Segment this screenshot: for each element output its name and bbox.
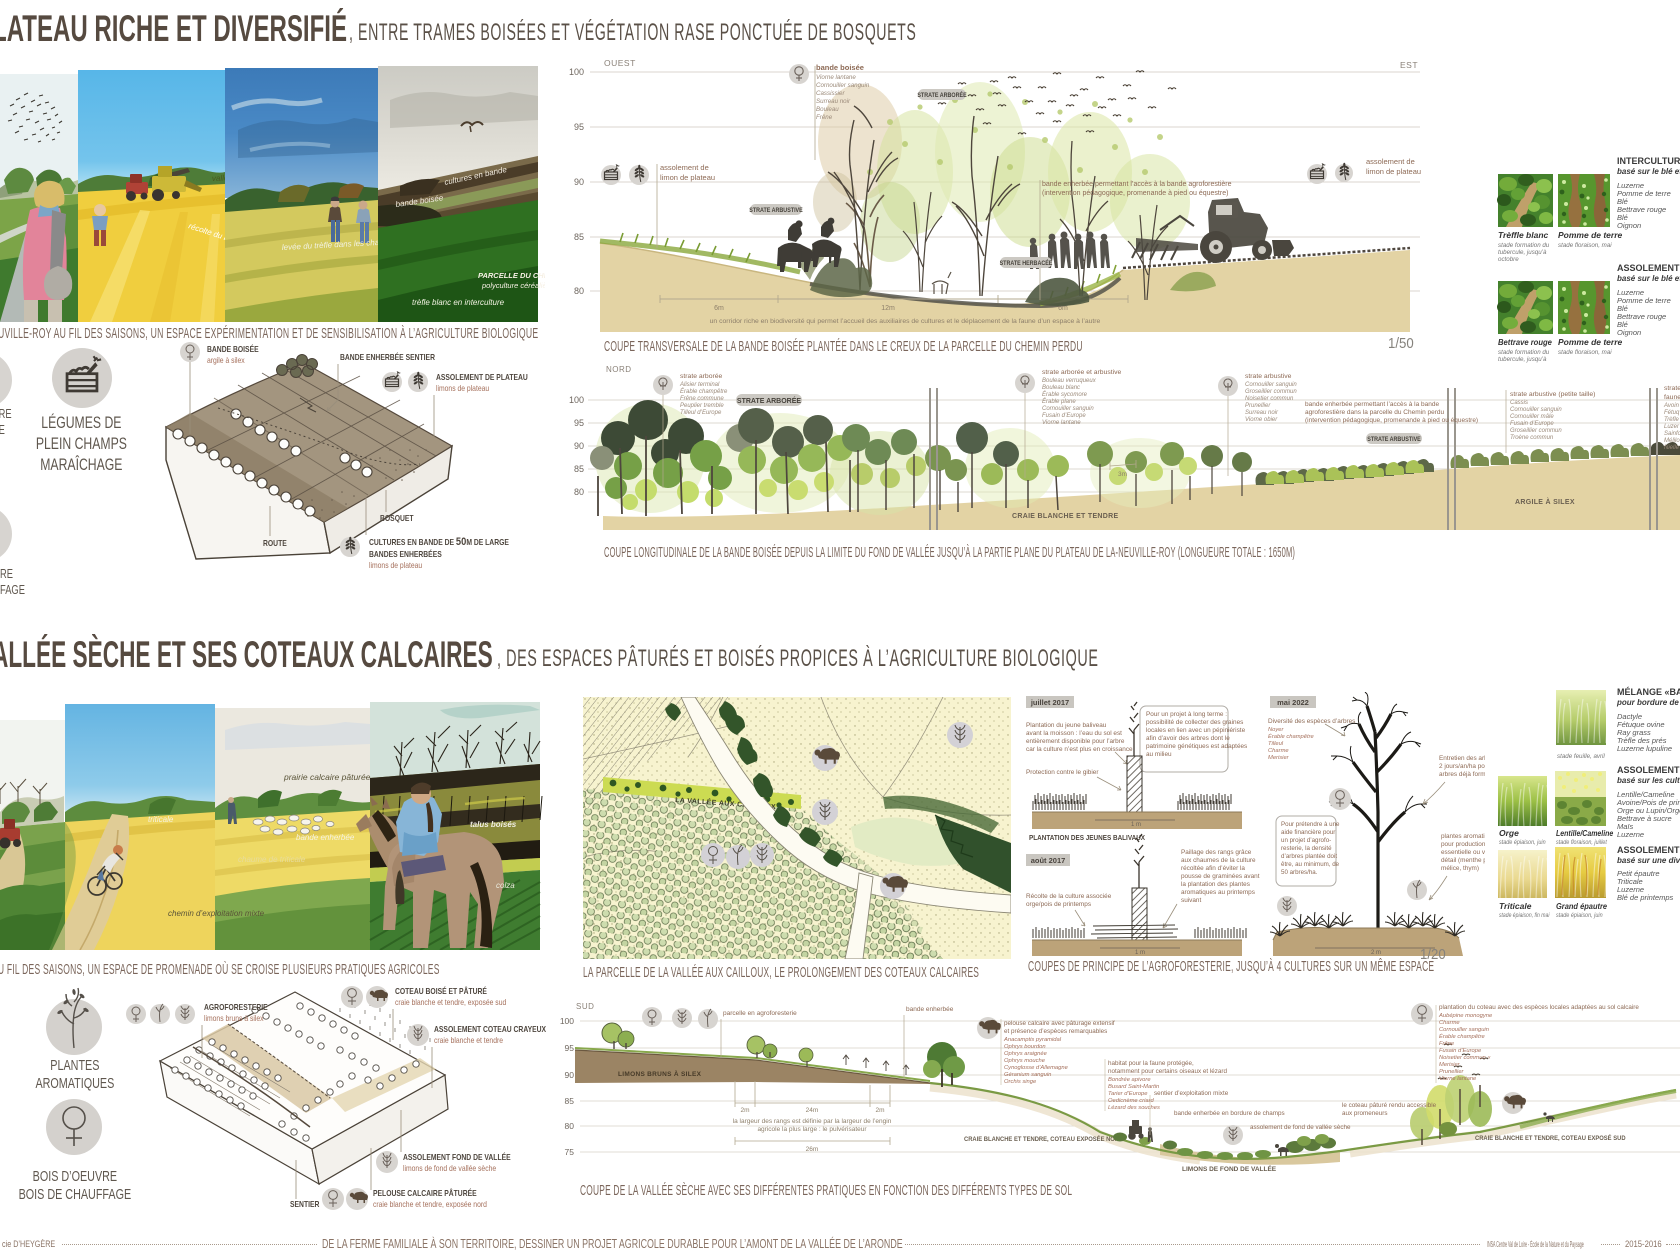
svg-text:Charme: Charme: [1439, 1020, 1460, 1026]
svg-text:FAGE: FAGE: [0, 584, 25, 598]
svg-text:Merisier: Merisier: [1439, 1062, 1461, 1068]
svg-text:Plantation du jeune baliveau: Plantation du jeune baliveau: [1026, 722, 1107, 729]
svg-text:CULTURES EN BANDE DE 50M DE LA: CULTURES EN BANDE DE 50M DE LARGE: [369, 536, 509, 548]
svg-text:tubercule, jusqu’à: tubercule, jusqu’à: [1498, 249, 1547, 256]
svg-text:PLANTES: PLANTES: [50, 1056, 99, 1073]
svg-text:95: 95: [565, 1043, 575, 1053]
svg-text:resterie, la densité: resterie, la densité: [1281, 845, 1332, 852]
svg-text:Groseillier commun: Groseillier commun: [1510, 428, 1562, 434]
svg-text:Prunellier: Prunellier: [1245, 403, 1271, 409]
svg-text:et présence d’espèces remarqua: et présence d’espèces remarquables: [1004, 1028, 1107, 1035]
svg-text:Oignon: Oignon: [1617, 328, 1641, 337]
svg-text:mélice, thym): mélice, thym): [1441, 865, 1479, 872]
svg-text:LÉGUMES DE: LÉGUMES DE: [41, 413, 121, 433]
svg-text:Pour un projet à long terme :: Pour un projet à long terme :: [1146, 711, 1227, 718]
svg-text:pour production d’huile: pour production d’huile: [1441, 841, 1485, 848]
svg-text:Charme: Charme: [1268, 748, 1289, 754]
svg-text:octobre: octobre: [1498, 256, 1519, 263]
svg-text:BANDE ENHERBÉE SENTIER: BANDE ENHERBÉE SENTIER: [340, 352, 436, 362]
svg-text:limons bruns à silex: limons bruns à silex: [204, 1013, 264, 1023]
svg-text:Anacamptis pyramidal: Anacamptis pyramidal: [1003, 1037, 1062, 1043]
svg-text:Prunellier: Prunellier: [1439, 1069, 1465, 1075]
svg-text:90: 90: [565, 1070, 575, 1080]
svg-text:limon de plateau: limon de plateau: [1366, 167, 1421, 176]
svg-text:EST: EST: [1400, 60, 1418, 70]
svg-text:faune: faune: [1664, 394, 1680, 401]
svg-text:RE: RE: [0, 568, 13, 582]
svg-text:PELOUSE CALCAIRE PÂTURÉE: PELOUSE CALCAIRE PÂTURÉE: [373, 1188, 477, 1198]
svg-text:Ophrys bourdon: Ophrys bourdon: [1004, 1044, 1046, 1050]
svg-text:85: 85: [574, 464, 584, 474]
svg-text:OUEST: OUEST: [604, 58, 636, 68]
svg-text:Grand épautre: Grand épautre: [1556, 902, 1608, 912]
svg-text:récoltée afin d’éviter la: récoltée afin d’éviter la: [1181, 865, 1245, 872]
svg-text:la largeur des rangs est défin: la largeur des rangs est définie par la …: [733, 1118, 892, 1125]
svg-text:1 m: 1 m: [1131, 822, 1141, 828]
svg-text:Récolte de la culture associée: Récolte de la culture associée: [1026, 893, 1112, 900]
svg-text:24m: 24m: [806, 1107, 819, 1114]
svg-text:Frêne: Frêne: [1439, 1041, 1455, 1047]
svg-text:basé sur les cultures: basé sur les cultures: [1617, 776, 1680, 785]
svg-text:Bouleau verruqueux: Bouleau verruqueux: [1042, 378, 1097, 384]
svg-text:ASSOLEMENT DE PLATEAU: ASSOLEMENT DE PLATEAU: [436, 372, 528, 382]
svg-text:stade floraison, mai: stade floraison, mai: [1558, 349, 1612, 356]
svg-text:(intervention pédagogique, pro: (intervention pédagogique, promenande à …: [1305, 417, 1478, 424]
svg-text:BANDE BOISÉE: BANDE BOISÉE: [207, 344, 259, 354]
svg-text:BOIS DE CHAUFFAGE: BOIS DE CHAUFFAGE: [19, 1185, 132, 1202]
svg-text:agroforestière dans la parcell: agroforestière dans la parcelle du Chemi…: [1305, 409, 1444, 416]
svg-text:Entretien des arbres :: Entretien des arbres :: [1439, 755, 1485, 762]
svg-text:6m: 6m: [714, 305, 724, 312]
svg-text:pelouse calcaire avec pâturage: pelouse calcaire avec pâturage extensif: [1004, 1020, 1115, 1027]
svg-text:stade floraison, juillet: stade floraison, juillet: [1556, 840, 1607, 846]
svg-text:Protection contre le gibier: Protection contre le gibier: [1026, 769, 1099, 776]
svg-text:limons de plateau: limons de plateau: [436, 383, 489, 393]
svg-text:MÉLANGE «BANDE: MÉLANGE «BANDE: [1617, 687, 1680, 697]
svg-text:Sainfo: Sainfo: [1664, 431, 1680, 437]
svg-text:6m: 6m: [1058, 305, 1068, 312]
svg-text:Tilleul: Tilleul: [1268, 741, 1284, 747]
svg-text:2 jours/an/ha pour des: 2 jours/an/ha pour des: [1439, 763, 1485, 770]
svg-text:3m: 3m: [1118, 471, 1127, 478]
svg-text:strate arbustive (petite taill: strate arbustive (petite taille): [1510, 391, 1595, 398]
svg-text:craie blanche et tendre: craie blanche et tendre: [434, 1035, 503, 1045]
svg-text:polyculture céréalière: polyculture céréalière: [481, 281, 545, 290]
svg-text:Viorne lantane: Viorne lantane: [816, 74, 856, 81]
svg-text:strate arborée et arbustive: strate arborée et arbustive: [1042, 369, 1122, 376]
svg-text:Cornouiller sanguin: Cornouiller sanguin: [1042, 406, 1094, 412]
svg-text:locales en lien avec un pépini: locales en lien avec un pépiniériste: [1146, 727, 1246, 734]
svg-text:Frêne: Frêne: [816, 114, 833, 121]
svg-text:Bettrave rouge: Bettrave rouge: [1498, 338, 1552, 347]
svg-text:85: 85: [574, 232, 584, 242]
svg-text:Trèffle blanc: Trèffle blanc: [1498, 230, 1549, 240]
svg-text:stade épiaison, juin: stade épiaison, juin: [1556, 913, 1603, 919]
svg-text:Viorne lantane: Viorne lantane: [1042, 420, 1081, 426]
svg-text:talus boisés: talus boisés: [470, 820, 517, 829]
svg-text:détail (menthe poivrée,: détail (menthe poivrée,: [1441, 857, 1485, 864]
svg-text:Bouleau: Bouleau: [816, 106, 839, 113]
svg-text:strate arborée: strate arborée: [680, 373, 723, 380]
svg-text:Érable champêtre: Érable champêtre: [1268, 733, 1315, 740]
svg-text:Groseillier commun: Groseillier commun: [1245, 389, 1297, 395]
svg-text:essentielle ou vente au: essentielle ou vente au: [1441, 849, 1485, 856]
svg-text:chaume de triticale: chaume de triticale: [238, 855, 306, 864]
svg-text:colza: colza: [496, 881, 515, 890]
svg-text:Cynoglosse d’Allemagne: Cynoglosse d’Allemagne: [1004, 1065, 1069, 1071]
svg-text:PARCELLE DU CHEMIN PERDU: PARCELLE DU CHEMIN PERDU: [478, 271, 545, 280]
svg-text:Surreau noir: Surreau noir: [1245, 410, 1279, 416]
svg-text:Cassissier: Cassissier: [816, 90, 845, 97]
svg-text:au milieu: au milieu: [1146, 751, 1172, 758]
svg-text:26m: 26m: [806, 1146, 819, 1153]
svg-text:Busard Saint-Martin: Busard Saint-Martin: [1108, 1084, 1159, 1090]
svg-text:CRAIE BLANCHE ET TENDRE, COTEA: CRAIE BLANCHE ET TENDRE, COTEAU EXPOSÉE …: [964, 1135, 1124, 1143]
svg-text:avant la moisson : l’eau du so: avant la moisson : l’eau du sol est: [1026, 730, 1122, 737]
svg-text:Cassis: Cassis: [1510, 400, 1528, 406]
svg-text:Cornouiller sanguin: Cornouiller sanguin: [1245, 382, 1297, 388]
svg-text:COTEAU BOISÉ ET PÂTURÉ: COTEAU BOISÉ ET PÂTURÉ: [395, 986, 487, 996]
svg-text:ASSOLEMENT DE P: ASSOLEMENT DE P: [1617, 263, 1680, 273]
svg-text:strate arbustive: strate arbustive: [1245, 373, 1292, 380]
svg-text:Paillage des rangs grâce: Paillage des rangs grâce: [1181, 849, 1252, 856]
svg-text:80: 80: [574, 487, 584, 497]
svg-text:E: E: [0, 424, 5, 438]
svg-text:Frêne commune: Frêne commune: [680, 396, 724, 402]
svg-text:Pomme de terre: Pomme de terre: [1558, 337, 1623, 347]
svg-text:85: 85: [565, 1096, 575, 1106]
svg-text:Pour prétendre à une: Pour prétendre à une: [1281, 821, 1340, 828]
svg-text:notamment pour certains oiseau: notamment pour certains oiseaux et lézar…: [1108, 1068, 1228, 1075]
svg-text:la plantation des plantes: la plantation des plantes: [1181, 881, 1250, 888]
svg-text:50 arbres/ha.: 50 arbres/ha.: [1281, 869, 1318, 876]
svg-text:Tarier d’Europe: Tarier d’Europe: [1108, 1091, 1148, 1097]
svg-text:plantation du coteau avec des: plantation du coteau avec des espèces lo…: [1439, 1004, 1639, 1011]
svg-text:Trèfle: Trèfle: [1664, 417, 1680, 423]
svg-text:Cornouiller mâle: Cornouiller mâle: [1510, 414, 1554, 420]
svg-text:Érable champêtre: Érable champêtre: [1439, 1033, 1486, 1040]
svg-text:ASSOLEMENT FON: ASSOLEMENT FON: [1617, 845, 1680, 855]
svg-text:Noyer: Noyer: [1268, 727, 1285, 733]
svg-text:BANDES ENHERBÉES: BANDES ENHERBÉES: [369, 549, 442, 559]
svg-text:être, au minimum, de: être, au minimum, de: [1281, 861, 1340, 868]
svg-text:Oignon: Oignon: [1617, 221, 1641, 230]
svg-text:ASSOLEMENT FOND DE VALLÉE: ASSOLEMENT FOND DE VALLÉE: [403, 1152, 511, 1162]
svg-text:Triticale: Triticale: [1499, 901, 1532, 911]
svg-text:Ophrys mouche: Ophrys mouche: [1004, 1058, 1046, 1064]
svg-text:SUD: SUD: [576, 1002, 594, 1011]
svg-text:95: 95: [574, 418, 584, 428]
svg-text:basé sur le blé et les c: basé sur le blé et les c: [1617, 274, 1680, 283]
svg-text:Viorne obier: Viorne obier: [1245, 417, 1278, 423]
svg-text:100: 100: [569, 67, 584, 77]
svg-text:Alisier terminal: Alisier terminal: [679, 382, 720, 388]
svg-text:Cornouiller sanguin: Cornouiller sanguin: [1439, 1027, 1489, 1033]
svg-text:limons de fond de vallée sèche: limons de fond de vallée sèche: [403, 1163, 496, 1173]
svg-text:SENTIER: SENTIER: [290, 1199, 320, 1209]
svg-text:basé sur une diversit: basé sur une diversit: [1617, 856, 1680, 865]
svg-text:un projet d’agrofo-: un projet d’agrofo-: [1281, 837, 1331, 844]
svg-text:90: 90: [574, 177, 584, 187]
svg-text:habitat pour la faune protégée: habitat pour la faune protégée,: [1108, 1060, 1194, 1067]
svg-text:craie blanche et tendre, expos: craie blanche et tendre, exposée nord: [373, 1199, 487, 1209]
svg-text:Géranium sanguin: Géranium sanguin: [1004, 1072, 1051, 1078]
svg-text:Lézard des souches: Lézard des souches: [1108, 1105, 1160, 1111]
svg-text:AROMATIQUES: AROMATIQUES: [35, 1074, 114, 1091]
svg-text:Peuplier tremble: Peuplier tremble: [680, 403, 724, 409]
svg-text:LIMONS DE FOND DE VALLÉE: LIMONS DE FOND DE VALLÉE: [1182, 1164, 1277, 1173]
svg-text:assolement de: assolement de: [660, 163, 709, 172]
svg-text:75: 75: [565, 1147, 575, 1157]
svg-text:bande enherbée en bordure de c: bande enherbée en bordure de champs: [1174, 1110, 1285, 1117]
svg-text:Merisier: Merisier: [1268, 755, 1290, 761]
svg-text:MARAÎCHAGE: MARAÎCHAGE: [40, 455, 122, 475]
svg-text:95: 95: [574, 122, 584, 132]
svg-text:Blé de printemps: Blé de printemps: [1617, 893, 1674, 902]
svg-text:STRATE HERBACÉE: STRATE HERBACÉE: [1000, 259, 1053, 267]
svg-text:Nielle: Nielle: [1664, 445, 1680, 451]
svg-text:plantes aromatiques: plantes aromatiques: [1441, 833, 1485, 840]
svg-text:stade formation du: stade formation du: [1498, 242, 1550, 249]
svg-text:Ophrys araignée: Ophrys araignée: [1004, 1051, 1048, 1057]
svg-text:d’arbres plantée doit: d’arbres plantée doit: [1281, 853, 1337, 860]
svg-text:Fusain d’Europe: Fusain d’Europe: [1439, 1048, 1482, 1054]
svg-text:STRATE ARBORÉE: STRATE ARBORÉE: [917, 91, 967, 99]
svg-text:CRAIE BLANCHE ET TENDRE, COTEA: CRAIE BLANCHE ET TENDRE, COTEAU EXPOSÉ S…: [1475, 1134, 1626, 1142]
svg-text:Luzer: Luzer: [1664, 424, 1680, 430]
svg-text:80: 80: [565, 1121, 575, 1131]
svg-text:1 m: 1 m: [1135, 950, 1145, 956]
svg-text:2m: 2m: [740, 1107, 749, 1114]
svg-text:Diversité des espèces d’arbres: Diversité des espèces d’arbres: [1268, 718, 1355, 725]
svg-text:Orchis singe: Orchis singe: [1004, 1079, 1037, 1085]
svg-text:Noisetier commun: Noisetier commun: [1245, 396, 1294, 402]
svg-text:Érable plane: Érable plane: [1042, 398, 1076, 405]
svg-text:100: 100: [560, 1016, 574, 1026]
svg-text:août 2017: août 2017: [1031, 856, 1066, 865]
svg-text:Oedicnème criard: Oedicnème criard: [1108, 1098, 1155, 1104]
svg-text:stade épiaison, juin: stade épiaison, juin: [1499, 840, 1546, 846]
svg-text:Luzerne lupuline: Luzerne lupuline: [1617, 744, 1672, 753]
svg-text:Pomme de terre: Pomme de terre: [1558, 230, 1623, 240]
svg-text:sentier d’exploitation mixte: sentier d’exploitation mixte: [1154, 1090, 1229, 1097]
svg-text:mai 2022: mai 2022: [1277, 698, 1309, 707]
svg-text:Bondrée apivore: Bondrée apivore: [1108, 1077, 1151, 1083]
svg-text:basé sur le blé et les i: basé sur le blé et les i: [1617, 167, 1680, 176]
svg-text:bande enherbée: bande enherbée: [906, 1006, 954, 1013]
svg-text:chemin d’exploitation mixte: chemin d’exploitation mixte: [168, 909, 265, 918]
svg-text:PLEIN CHAMPS: PLEIN CHAMPS: [36, 435, 127, 453]
svg-text:BOIS D’OEUVRE: BOIS D’OEUVRE: [33, 1167, 118, 1184]
svg-text:stade épiaison, fin mai: stade épiaison, fin mai: [1499, 913, 1550, 920]
svg-text:aux promeneurs: aux promeneurs: [1342, 1110, 1388, 1117]
svg-text:Viorne lantane: Viorne lantane: [1439, 1076, 1477, 1082]
svg-text:entièrement disponible pour l’: entièrement disponible pour l’arbre: [1026, 738, 1125, 745]
svg-text:INTERCULTURE: INTERCULTURE: [1617, 156, 1680, 166]
svg-text:car la culture n’est plus en c: car la culture n’est plus en croissance: [1026, 746, 1133, 753]
svg-text:triticale: triticale: [148, 815, 174, 824]
svg-text:Cornouiller sanguin: Cornouiller sanguin: [816, 82, 870, 89]
svg-text:Cornouiller sanguin: Cornouiller sanguin: [1510, 407, 1562, 413]
svg-text:2 m: 2 m: [1371, 950, 1381, 956]
svg-text:strate: strate: [1664, 385, 1680, 392]
svg-text:prairie calcaire pâturée: prairie calcaire pâturée: [283, 772, 371, 782]
svg-text:12m: 12m: [881, 305, 895, 312]
svg-text:argile à silex: argile à silex: [207, 355, 245, 365]
svg-text:RE: RE: [0, 408, 12, 422]
svg-text:un corridor riche en biodivers: un corridor riche en biodiversité qui pe…: [710, 318, 1101, 325]
svg-text:juillet 2017: juillet 2017: [1030, 698, 1069, 707]
svg-text:NORD: NORD: [606, 365, 632, 374]
svg-text:assolement de fond de vallée s: assolement de fond de vallée sèche: [1250, 1124, 1351, 1131]
svg-text:AGROFORESTERIE: AGROFORESTERIE: [204, 1002, 268, 1012]
svg-text:STRATE ARBORÉE: STRATE ARBORÉE: [737, 396, 802, 405]
svg-text:aromatiques au printemps: aromatiques au printemps: [1181, 889, 1255, 896]
svg-text:STRATE ARBUSTIVE: STRATE ARBUSTIVE: [1367, 437, 1421, 443]
svg-text:le coteau pâturé rendu accessi: le coteau pâturé rendu accessible: [1342, 1102, 1437, 1109]
svg-text:Mélilo: Mélilo: [1664, 438, 1680, 444]
svg-text:Aubépine monogyne: Aubépine monogyne: [1438, 1013, 1493, 1019]
svg-text:ASSOLEMENT COT: ASSOLEMENT COT: [1617, 765, 1680, 775]
svg-text:PLANTATION DES JEUNES BALIVAUX: PLANTATION DES JEUNES BALIVAUX: [1029, 835, 1145, 843]
svg-text:parcelle en agroforesterie: parcelle en agroforesterie: [723, 1010, 797, 1017]
svg-text:aux chaumes de la culture: aux chaumes de la culture: [1181, 857, 1256, 864]
svg-text:Noisetier commun «: Noisetier commun «: [1439, 1055, 1491, 1061]
svg-text:Fusain d’Europe: Fusain d’Europe: [1042, 413, 1086, 419]
svg-text:CRAIE BLANCHE ET TENDRE: CRAIE BLANCHE ET TENDRE: [1012, 513, 1118, 520]
svg-text:Érable champêtre: Érable champêtre: [680, 388, 728, 395]
svg-text:Érable sycomore: Érable sycomore: [1042, 391, 1088, 398]
svg-text:limons de plateau: limons de plateau: [369, 560, 422, 570]
svg-text:possibilité de collecter des g: possibilité de collecter des graines: [1146, 719, 1243, 726]
svg-text:Orge: Orge: [1499, 828, 1519, 838]
svg-text:bande enherbée: bande enherbée: [296, 833, 355, 842]
svg-text:STRATE ARBUSTIVE: STRATE ARBUSTIVE: [749, 208, 803, 214]
svg-text:pousse de graminées avant: pousse de graminées avant: [1181, 873, 1260, 880]
svg-text:Luzerne: Luzerne: [1617, 830, 1644, 839]
svg-text:patrimoine génétiques est adap: patrimoine génétiques est adaptées: [1146, 743, 1247, 750]
svg-text:arbres déjà formés: arbres déjà formés: [1439, 771, 1485, 778]
svg-text:agricole la plus large : le pu: agricole la plus large : le pulvérisateu…: [757, 1126, 867, 1133]
svg-text:trèfle blanc en interculture: trèfle blanc en interculture: [412, 298, 505, 307]
svg-text:Fusain d’Europe: Fusain d’Europe: [1510, 421, 1554, 427]
svg-text:afin d’avoir des arbres dont: afin d’avoir des arbres dont le: [1146, 735, 1230, 742]
svg-text:aide financière pour: aide financière pour: [1281, 829, 1335, 836]
svg-text:limon de plateau: limon de plateau: [660, 173, 715, 182]
svg-text:bande boisée: bande boisée: [816, 63, 864, 72]
svg-text:bande enherbée permettant l’ac: bande enherbée permettant l’accès à la b…: [1305, 401, 1439, 408]
svg-text:100: 100: [569, 395, 584, 405]
svg-text:LIMONS BRUNS À SILEX: LIMONS BRUNS À SILEX: [618, 1069, 702, 1078]
svg-text:bande enherbée permettant l’ac: bande enherbée permettant l’accès à la b…: [1042, 181, 1232, 188]
svg-text:ROUTE: ROUTE: [263, 538, 287, 548]
svg-text:pour bordure de cha: pour bordure de cha: [1616, 698, 1680, 707]
svg-text:(intervention pédagogique, pro: (intervention pédagogique, promenande à …: [1042, 190, 1228, 197]
svg-text:Troène commun: Troène commun: [1510, 435, 1554, 441]
svg-text:Fétuq: Fétuq: [1664, 410, 1680, 416]
svg-text:Avoin: Avoin: [1663, 403, 1680, 409]
svg-text:assolement de: assolement de: [1366, 157, 1415, 166]
svg-text:suivant: suivant: [1181, 897, 1201, 904]
svg-text:stade feuille, avril: stade feuille, avril: [1557, 753, 1605, 760]
svg-text:BOSQUET: BOSQUET: [380, 513, 414, 523]
svg-text:2m: 2m: [875, 1107, 884, 1114]
svg-text:Surreau noir: Surreau noir: [816, 98, 851, 105]
svg-text:stade floraison, mai: stade floraison, mai: [1558, 242, 1612, 249]
svg-text:Tilleul d’Europe: Tilleul d’Europe: [680, 410, 722, 416]
svg-text:stade formation du: stade formation du: [1498, 349, 1550, 356]
svg-text:Bouleau blanc: Bouleau blanc: [1042, 385, 1080, 391]
svg-text:craie blanche et tendre, expos: craie blanche et tendre, exposée sud: [395, 997, 506, 1007]
svg-text:ARGILE À SILEX: ARGILE À SILEX: [1515, 497, 1575, 506]
svg-text:orge/pois de printemps: orge/pois de printemps: [1026, 901, 1091, 908]
svg-text:ASSOLEMENT COTEAU CRAYEUX: ASSOLEMENT COTEAU CRAYEUX: [434, 1024, 546, 1034]
svg-text:80: 80: [574, 286, 584, 296]
svg-text:90: 90: [574, 441, 584, 451]
svg-text:Lentille/Cameline: Lentille/Cameline: [1556, 828, 1614, 838]
